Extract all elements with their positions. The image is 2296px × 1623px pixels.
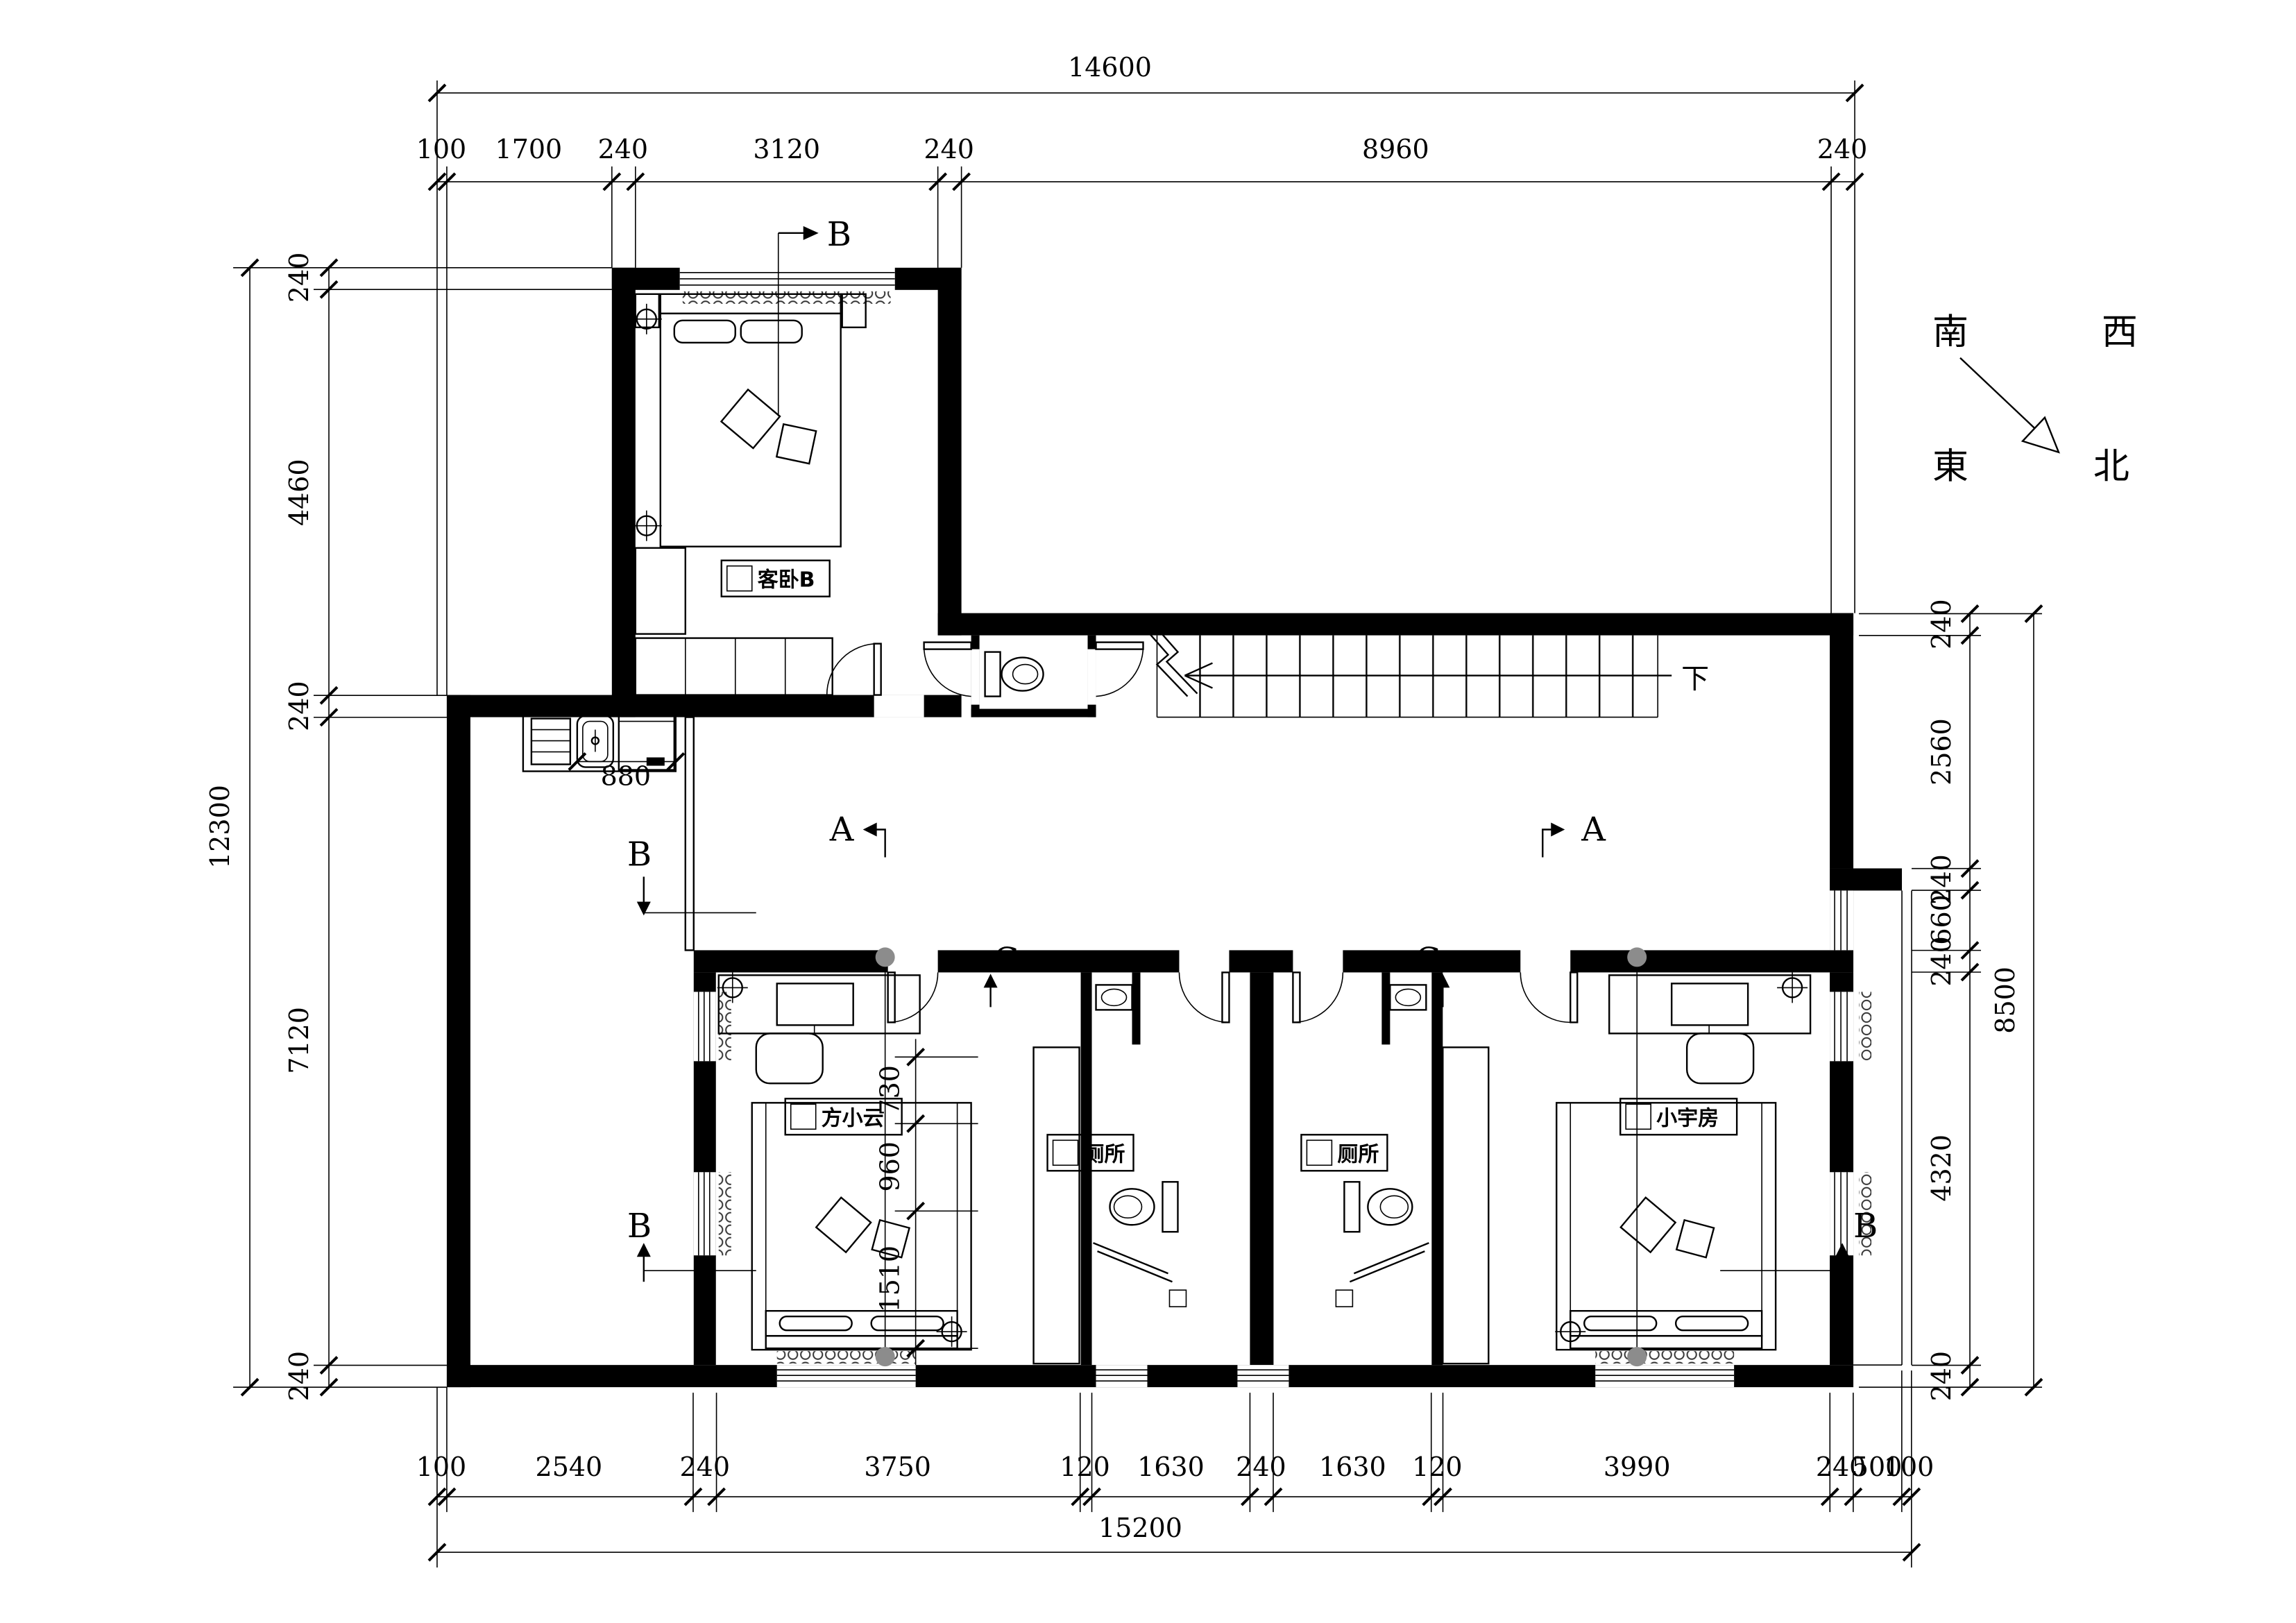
xiaoyufang-furniture xyxy=(1443,975,1810,1363)
column-markers xyxy=(631,304,1808,1347)
svg-text:240: 240 xyxy=(284,681,314,731)
bedroomB-furniture xyxy=(636,294,866,695)
dim-bottom: 100 2540 240 3750 120 1630 240 1630 120 … xyxy=(416,1452,1934,1543)
compass-north: 北 xyxy=(2093,446,2129,488)
dim-right: 240 2560 240 660 240 4320 240 8500 xyxy=(1926,599,2021,1401)
svg-text:4320: 4320 xyxy=(1926,1135,1957,1202)
svg-text:3990: 3990 xyxy=(1604,1452,1671,1482)
svg-text:3750: 3750 xyxy=(864,1452,931,1482)
partition xyxy=(686,717,694,951)
wc-top xyxy=(985,652,1044,697)
svg-text:240: 240 xyxy=(924,134,973,164)
svg-text:960: 960 xyxy=(875,1141,905,1191)
section-marker-b-left-mid: B xyxy=(627,835,652,915)
dim-total-top: 14600 xyxy=(1068,52,1152,83)
floorplan-drawing: 下 xyxy=(0,0,2296,1623)
dim-total-bottom: 15200 xyxy=(1098,1513,1182,1543)
svg-text:100: 100 xyxy=(416,134,466,164)
compass: 南 西 東 北 xyxy=(1932,312,2138,488)
room-label-text: 小宇房 xyxy=(1656,1106,1719,1130)
svg-text:240: 240 xyxy=(284,253,314,303)
svg-text:B: B xyxy=(627,835,652,874)
dim-kitchen: 880 xyxy=(601,761,651,792)
fixtures xyxy=(523,294,1912,1366)
dim-ticks xyxy=(241,85,2042,1561)
section-line-nodes xyxy=(644,912,1842,1366)
room-label-text: 客卧B xyxy=(758,568,815,593)
svg-text:730: 730 xyxy=(875,1065,905,1115)
wardrobe-hatch xyxy=(636,548,686,634)
svg-text:2540: 2540 xyxy=(536,1452,603,1482)
section-marker-a-right: A xyxy=(1542,810,1606,857)
svg-text:1700: 1700 xyxy=(495,134,563,164)
extension-lines xyxy=(233,80,2042,1567)
svg-text:120: 120 xyxy=(1060,1452,1109,1482)
room-label-text: 厕所 xyxy=(1084,1142,1125,1166)
compass-west: 西 xyxy=(2102,312,2138,353)
svg-text:B: B xyxy=(627,1207,652,1246)
svg-text:240: 240 xyxy=(598,134,648,164)
svg-text:1630: 1630 xyxy=(1319,1452,1386,1482)
svg-text:120: 120 xyxy=(1412,1452,1462,1482)
svg-text:240: 240 xyxy=(1817,134,1867,164)
room-label-bedroomB: 客卧B xyxy=(722,561,830,597)
walls xyxy=(447,268,1902,1387)
dim-top: 100 1700 240 3120 240 8960 240 14600 xyxy=(416,52,1868,164)
section-marker-a-left: A xyxy=(829,810,885,857)
svg-text:240: 240 xyxy=(1926,1351,1957,1401)
svg-text:3120: 3120 xyxy=(753,134,820,164)
compass-south: 南 xyxy=(1932,312,1968,353)
svg-text:8960: 8960 xyxy=(1362,134,1429,164)
wardrobe-hatch xyxy=(1034,1047,1080,1363)
stairs-down-label: 下 xyxy=(1681,663,1709,695)
svg-text:A: A xyxy=(829,810,855,849)
svg-text:100: 100 xyxy=(416,1452,466,1482)
svg-text:240: 240 xyxy=(1926,599,1957,649)
svg-text:100: 100 xyxy=(1884,1452,1934,1482)
svg-text:A: A xyxy=(1581,810,1606,849)
svg-text:4460: 4460 xyxy=(284,459,314,526)
svg-text:240: 240 xyxy=(284,1351,314,1401)
compass-east: 東 xyxy=(1932,446,1968,488)
svg-text:2560: 2560 xyxy=(1926,718,1957,785)
svg-text:240: 240 xyxy=(1236,1452,1286,1482)
svg-text:1630: 1630 xyxy=(1137,1452,1205,1482)
svg-text:C: C xyxy=(994,940,1019,979)
room-label-toilet-right: 厕所 xyxy=(1301,1135,1387,1171)
wardrobe-hatch xyxy=(1443,1047,1488,1363)
svg-text:240: 240 xyxy=(1926,936,1957,986)
dim-left: 240 4460 240 7120 240 12300 xyxy=(205,253,314,1402)
dim-total-right: 8500 xyxy=(1990,967,2021,1034)
compass-arrow xyxy=(1960,358,2035,429)
room-label-xiaoyufang: 小宇房 xyxy=(1620,1098,1737,1135)
svg-text:C: C xyxy=(1415,940,1440,979)
floorplan-page: 下 xyxy=(0,0,2296,1623)
dimensions: 100 1700 240 3120 240 8960 240 14600 100… xyxy=(205,52,2042,1567)
svg-text:240: 240 xyxy=(680,1452,730,1482)
svg-text:7120: 7120 xyxy=(284,1007,314,1074)
windows xyxy=(680,268,1871,1387)
terrace-edge xyxy=(1853,890,1912,1365)
svg-text:B: B xyxy=(827,215,851,254)
dim-total-left: 12300 xyxy=(205,785,235,869)
svg-text:1510: 1510 xyxy=(875,1246,905,1313)
svg-text:B: B xyxy=(1853,1207,1878,1246)
room-label-text: 厕所 xyxy=(1337,1142,1379,1166)
curtain-coil xyxy=(683,291,891,304)
kitchen-counter xyxy=(523,712,676,772)
